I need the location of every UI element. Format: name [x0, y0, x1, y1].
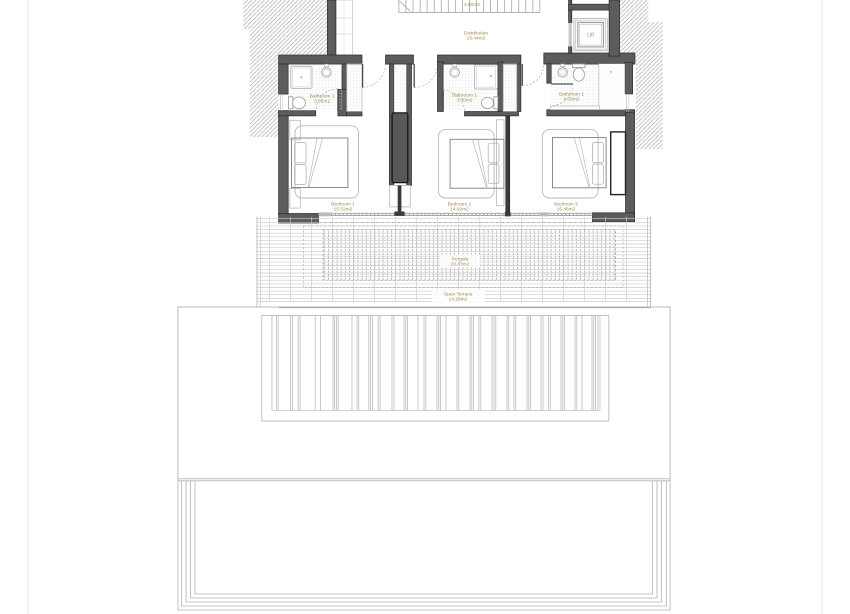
- svg-text:15.46m2: 15.46m2: [557, 207, 576, 213]
- svg-text:14.28m2: 14.28m2: [449, 297, 468, 303]
- svg-text:4.33m2: 4.33m2: [564, 97, 580, 103]
- svg-text:3.05m2: 3.05m2: [314, 99, 330, 105]
- svg-text:14.92m2: 14.92m2: [450, 207, 469, 213]
- svg-text:20.83m2: 20.83m2: [451, 261, 470, 267]
- svg-text:15.44m2: 15.44m2: [467, 36, 486, 42]
- svg-text:15.52m2: 15.52m2: [334, 207, 353, 213]
- svg-text:4.80m2: 4.80m2: [464, 2, 480, 8]
- svg-text:3.30m2: 3.30m2: [457, 97, 473, 103]
- svg-text:Lift: Lift: [587, 33, 594, 39]
